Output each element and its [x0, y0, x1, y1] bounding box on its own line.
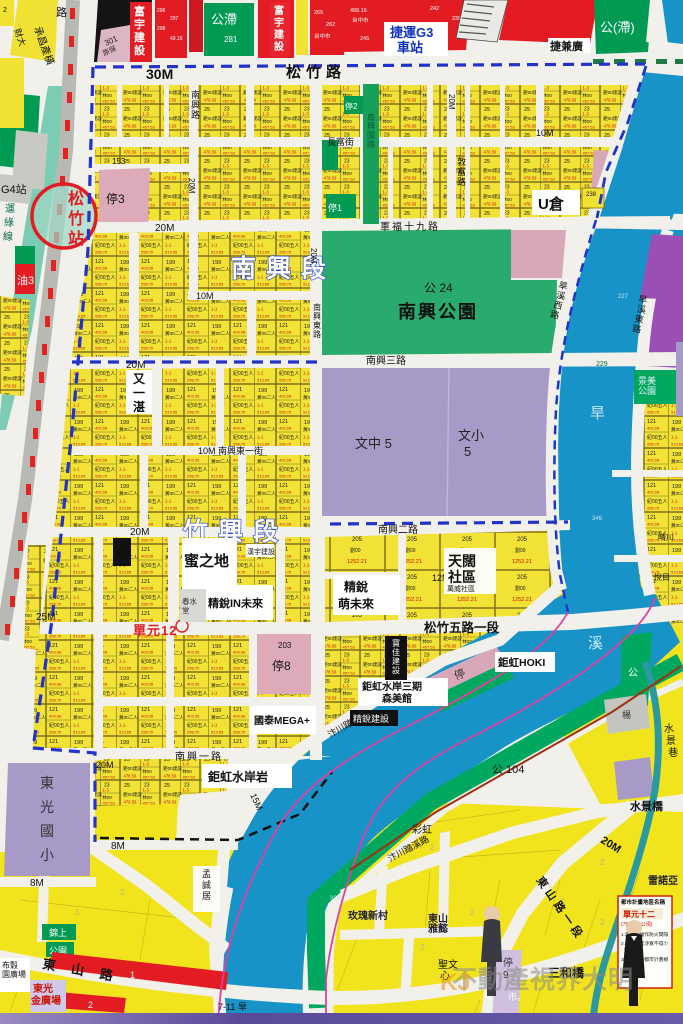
svg-text:建: 建 [273, 28, 285, 41]
svg-text:園: 園 [367, 131, 375, 140]
svg-text:布穀: 布穀 [2, 960, 18, 970]
svg-text:社區: 社區 [447, 569, 476, 585]
svg-text:錦上: 錦上 [49, 927, 67, 938]
svg-text:東: 東 [313, 320, 321, 330]
svg-text:宇: 宇 [274, 16, 284, 29]
svg-text:萌未來: 萌未來 [338, 596, 374, 611]
svg-text:蜜之地: 蜜之地 [184, 552, 229, 570]
svg-text:台中市: 台中市 [352, 16, 369, 24]
svg-text:鉅虹水岸三期: 鉅虹水岸三期 [362, 680, 422, 693]
svg-text:停8: 停8 [272, 658, 291, 673]
svg-text:公 24: 公 24 [424, 281, 453, 295]
svg-text:229: 229 [596, 361, 608, 368]
svg-text:265: 265 [314, 10, 323, 16]
svg-text:設: 設 [274, 40, 285, 53]
svg-text:國: 國 [40, 823, 54, 839]
svg-text:公 104: 公 104 [492, 764, 524, 776]
svg-text:20M: 20M [309, 248, 318, 264]
svg-text:10M 南興東一街: 10M 南興東一街 [198, 445, 263, 456]
svg-text:鉅虹水岸岩: 鉅虹水岸岩 [207, 769, 268, 784]
svg-text:興: 興 [367, 121, 375, 131]
svg-text:玫瑰新村: 玫瑰新村 [348, 909, 388, 922]
svg-text:南: 南 [313, 302, 321, 312]
svg-text:路: 路 [632, 323, 642, 335]
svg-text:天闊: 天闊 [448, 553, 476, 569]
svg-text:20M: 20M [187, 178, 196, 194]
svg-text:30M: 30M [146, 66, 173, 82]
svg-text:南興一路: 南興一路 [175, 750, 223, 763]
svg-text:居: 居 [202, 891, 211, 901]
svg-text:2: 2 [88, 1000, 93, 1010]
svg-text:興: 興 [313, 311, 321, 321]
svg-text:路: 路 [56, 6, 67, 19]
svg-text:松: 松 [68, 189, 84, 208]
svg-text:3: 3 [75, 908, 80, 917]
svg-text:公: 公 [628, 668, 638, 679]
svg-text:2: 2 [600, 918, 605, 927]
svg-text:10M: 10M [196, 291, 214, 301]
svg-text:線: 線 [3, 230, 13, 243]
svg-text:2: 2 [3, 7, 7, 14]
svg-text:153: 153 [112, 157, 126, 166]
svg-text:雅懿: 雅懿 [428, 922, 448, 935]
svg-text:南興三路: 南興三路 [366, 354, 406, 367]
svg-text:路: 路 [313, 329, 321, 339]
svg-text:G4站: G4站 [1, 182, 27, 196]
svg-text:245: 245 [360, 36, 369, 42]
svg-text:雷諾亞: 雷諾亞 [648, 874, 678, 887]
svg-text:油3: 油3 [17, 273, 34, 287]
svg-text:49.16: 49.16 [170, 36, 183, 42]
svg-text:市。: 市。 [508, 991, 526, 1002]
svg-text:單元十二: 單元十二 [623, 909, 655, 919]
svg-text:20M: 20M [447, 94, 456, 110]
svg-text:公園: 公園 [638, 386, 656, 396]
svg-text:南興公園: 南興公園 [398, 301, 478, 322]
svg-text:台中市: 台中市 [314, 32, 331, 40]
svg-text:松竹路: 松竹路 [286, 63, 346, 81]
svg-text:296: 296 [157, 8, 166, 14]
svg-text:運: 運 [5, 203, 15, 215]
svg-text:297: 297 [170, 16, 179, 22]
svg-text:2: 2 [470, 908, 475, 917]
svg-text:悅目: 悅目 [654, 572, 670, 582]
svg-text:小: 小 [40, 847, 54, 863]
svg-text:漢宇建設: 漢宇建設 [247, 547, 275, 556]
svg-text:綠: 綠 [4, 217, 14, 229]
svg-text:佳: 佳 [392, 647, 400, 657]
svg-text:設: 設 [392, 665, 400, 675]
svg-text:敦: 敦 [457, 156, 466, 167]
svg-text:238: 238 [586, 192, 597, 198]
svg-text:公滯: 公滯 [211, 12, 237, 27]
svg-text:停3: 停3 [106, 191, 125, 206]
svg-text:KJ: KJ [440, 969, 471, 996]
svg-text:興: 興 [191, 100, 200, 110]
svg-text:20M: 20M [155, 223, 174, 234]
svg-text:文小: 文小 [458, 428, 484, 443]
svg-text:寶: 寶 [392, 638, 400, 648]
svg-text:242: 242 [430, 6, 439, 12]
svg-text:鉅虹HOKI: 鉅虹HOKI [498, 656, 545, 669]
svg-text:精銳: 精銳 [344, 579, 368, 594]
svg-text:長富街: 長富街 [327, 136, 354, 147]
svg-text:站: 站 [68, 229, 84, 248]
svg-text:松竹五路一段: 松竹五路一段 [424, 620, 500, 635]
svg-text:萬威社區: 萬威社區 [447, 584, 475, 593]
svg-text:捷運G3: 捷運G3 [390, 25, 433, 40]
svg-text:楊: 楊 [622, 710, 631, 720]
svg-text:單元12: 單元12 [133, 623, 177, 638]
svg-text:晴川: 晴川 [658, 532, 674, 542]
svg-text:都市計畫地區名稱: 都市計畫地區名稱 [620, 898, 666, 906]
svg-text:建: 建 [134, 30, 146, 44]
svg-text:富: 富 [134, 4, 145, 18]
svg-text:203: 203 [278, 641, 292, 650]
svg-text:路: 路 [457, 176, 466, 187]
svg-text:溪: 溪 [588, 635, 603, 652]
svg-text:10M: 10M [536, 128, 554, 138]
svg-text:383: 383 [330, 896, 341, 902]
svg-text:湛: 湛 [133, 399, 145, 414]
svg-text:捷兼廣: 捷兼廣 [550, 39, 583, 53]
svg-text:南興二路: 南興二路 [378, 523, 418, 536]
svg-text:旱: 旱 [590, 405, 605, 422]
svg-text:春水: 春水 [182, 596, 197, 606]
svg-text:7-11 旱: 7-11 旱 [218, 1002, 247, 1012]
svg-text:8M: 8M [111, 841, 125, 852]
svg-text:車站: 車站 [397, 40, 423, 55]
svg-text:景美: 景美 [638, 375, 656, 386]
svg-text:498.16: 498.16 [350, 8, 367, 14]
svg-text:281: 281 [224, 35, 238, 44]
svg-text:森美館: 森美館 [381, 692, 412, 705]
svg-text:U倉: U倉 [538, 195, 565, 213]
svg-text:文中 5: 文中 5 [355, 436, 392, 451]
svg-text:園廣場: 園廣場 [2, 969, 26, 979]
svg-text:262: 262 [326, 22, 335, 28]
svg-text:水景橋: 水景橋 [630, 799, 664, 813]
svg-text:設: 設 [134, 43, 146, 57]
svg-text:孟: 孟 [202, 869, 211, 879]
svg-text:2: 2 [420, 943, 425, 952]
svg-text:一: 一 [133, 386, 145, 400]
svg-text:彩虹: 彩虹 [412, 824, 432, 836]
svg-text:公(滯): 公(滯) [600, 20, 635, 35]
svg-text:停2: 停2 [345, 101, 358, 111]
svg-text:精銳IN未來: 精銳IN未來 [208, 596, 263, 610]
svg-text:南興段: 南興段 [231, 254, 336, 283]
svg-text:東光: 東光 [33, 982, 53, 995]
svg-text:堂: 堂 [182, 605, 190, 615]
svg-text:2: 2 [430, 843, 435, 852]
svg-text:宇: 宇 [134, 17, 145, 31]
svg-text:巷: 巷 [668, 747, 678, 759]
svg-text:建: 建 [392, 656, 400, 666]
svg-text:1: 1 [130, 970, 135, 980]
svg-text:不動產視界大明: 不動產視界大明 [452, 965, 634, 994]
svg-text:精銳建設: 精銳建設 [353, 713, 389, 724]
svg-text:富: 富 [457, 166, 466, 177]
svg-text:20M: 20M [126, 360, 145, 371]
svg-text:軍福十九路: 軍福十九路 [380, 220, 440, 233]
svg-text:國泰MEGA+: 國泰MEGA+ [254, 714, 310, 727]
svg-text:227: 227 [618, 294, 629, 300]
svg-text:金廣場: 金廣場 [30, 994, 61, 1007]
svg-text:富: 富 [274, 4, 284, 17]
svg-text:景: 景 [666, 735, 676, 747]
svg-text:8M: 8M [30, 878, 44, 889]
svg-text:竹: 竹 [67, 209, 84, 228]
svg-text:25M: 25M [36, 612, 55, 623]
svg-text:路: 路 [191, 109, 200, 120]
svg-text:346: 346 [592, 516, 603, 522]
svg-text:2: 2 [120, 888, 125, 897]
svg-text:又: 又 [132, 372, 146, 386]
svg-text:298: 298 [157, 26, 166, 32]
svg-text:路: 路 [367, 139, 375, 149]
svg-text:光: 光 [40, 799, 54, 815]
svg-text:東: 東 [40, 775, 54, 791]
svg-text:20M: 20M [96, 760, 114, 770]
svg-text:停1: 停1 [328, 202, 342, 213]
svg-text:20M: 20M [130, 527, 149, 538]
svg-text:5: 5 [464, 444, 471, 459]
svg-text:2: 2 [600, 858, 605, 867]
svg-text:水: 水 [664, 723, 674, 735]
svg-text:南: 南 [367, 112, 375, 122]
svg-text:誠: 誠 [202, 879, 211, 890]
svg-text:南: 南 [191, 89, 200, 100]
